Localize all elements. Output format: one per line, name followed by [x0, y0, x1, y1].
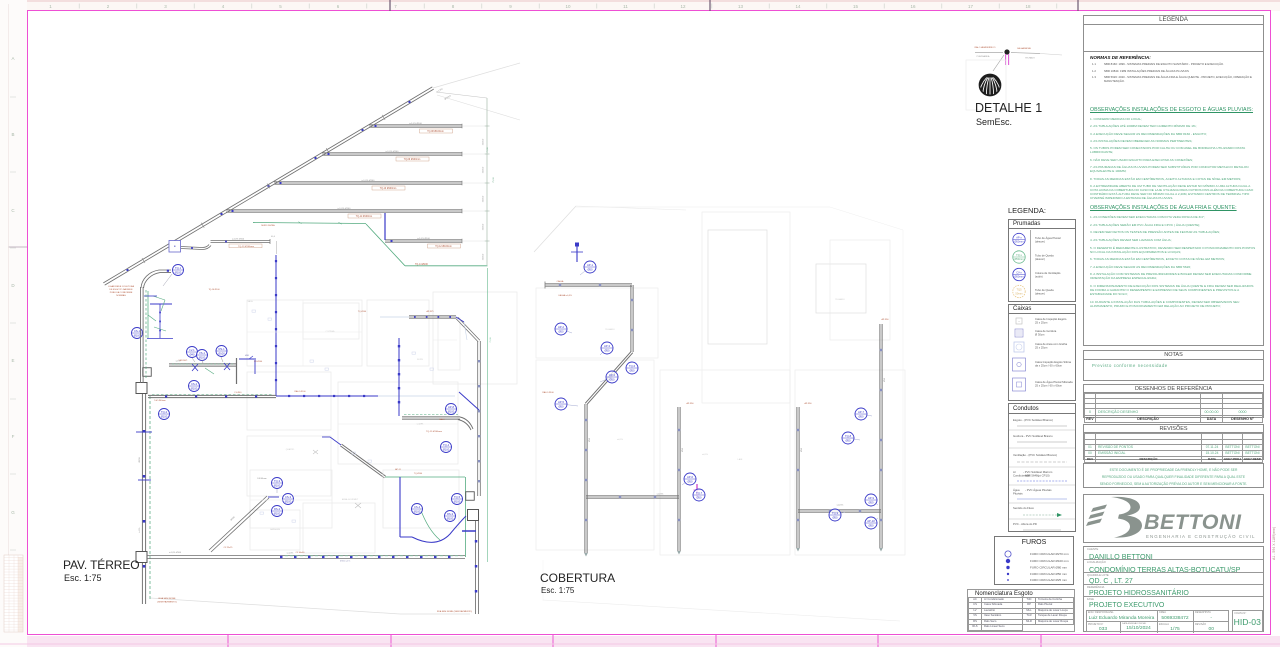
svg-text:AP-5: AP-5 — [558, 400, 564, 404]
svg-text:i=1,0% Ø100: i=1,0% Ø100 — [338, 208, 351, 210]
svg-text:Ventilação - (PVC Soldável Bra: Ventilação - (PVC Soldável Branco) — [1013, 453, 1057, 457]
svg-text:CALHA METAL: CALHA METAL — [1017, 47, 1032, 50]
svg-text:RS-2: RS-2 — [274, 507, 281, 511]
svg-text:Ø100: Ø100 — [199, 355, 206, 359]
svg-text:Ø50: Ø50 — [801, 447, 803, 452]
svg-text:Sentido do Fluxo: Sentido do Fluxo — [1013, 506, 1034, 510]
svg-text:TQ-12 Ø100mm: TQ-12 Ø100mm — [435, 246, 452, 248]
svg-text:Ø100: Ø100 — [448, 409, 455, 413]
svg-text:AP-6: AP-6 — [687, 475, 693, 479]
svg-text:Ø50: Ø50 — [845, 438, 851, 442]
svg-text:RUA SEM NOME (SEM PAVIMENTO): RUA SEM NOME (SEM PAVIMENTO) — [437, 610, 472, 613]
svg-text:i=0,5%: i=0,5% — [657, 494, 664, 496]
svg-text:i=1,0% Ø100: i=1,0% Ø100 — [386, 151, 399, 153]
svg-text:TQ-14 Ø100: TQ-14 Ø100 — [415, 264, 428, 266]
svg-text:CS-4: CS-4 — [414, 505, 421, 509]
svg-text:FURO CIRCULAR Ø270 mm: FURO CIRCULAR Ø270 mm — [1030, 552, 1069, 556]
svg-text:TQ-1: TQ-1 — [175, 266, 182, 270]
svg-text:TQ-10 Ø100mm: TQ-10 Ø100mm — [380, 188, 397, 190]
svg-text:TQ-6: TQ-6 — [629, 364, 636, 368]
svg-text:AP-9: AP-9 — [868, 496, 874, 500]
svg-text:Caixa de Gordura: Caixa de Gordura — [1035, 329, 1057, 333]
svg-text:Ø100: Ø100 — [218, 351, 225, 355]
svg-text:TQ-7: TQ-7 — [696, 491, 703, 495]
svg-text:(descer): (descer) — [1035, 239, 1045, 243]
svg-text:NORMAS: NORMAS — [116, 294, 126, 297]
svg-text:COZINHA: COZINHA — [326, 330, 336, 333]
svg-text:(descer): (descer) — [1035, 291, 1045, 295]
svg-text:TQ-8: TQ-8 — [845, 434, 852, 438]
svg-text:3000,0: 3000,0 — [483, 195, 485, 202]
svg-text:3000,0: 3000,0 — [483, 223, 485, 230]
svg-text:Tubo de Queda: Tubo de Queda — [1035, 288, 1054, 292]
svg-text:CS-3: CS-3 — [285, 495, 292, 499]
svg-text:TQ5: TQ5 — [1016, 288, 1022, 292]
svg-text:i=1,0% Ø100: i=1,0% Ø100 — [169, 552, 182, 554]
svg-text:MURO DIVISA: MURO DIVISA — [261, 224, 275, 227]
svg-text:Ø50mm: Ø50mm — [1014, 274, 1023, 278]
svg-text:TQ Ø100: TQ Ø100 — [358, 311, 367, 313]
svg-text:AREA GOURMET: AREA GOURMET — [342, 498, 359, 501]
svg-text:BETTONI: BETTONI — [1144, 510, 1242, 534]
svg-text:Ø50: Ø50 — [589, 437, 591, 442]
svg-text:TQ-08 Ø100mm: TQ-08 Ø100mm — [427, 131, 444, 133]
svg-text:Ø50: Ø50 — [558, 329, 564, 333]
svg-text:AP Ø50: AP Ø50 — [687, 402, 695, 405]
svg-text:DN 40mm: DN 40mm — [257, 478, 267, 480]
svg-text:AP Ø75: AP Ø75 — [427, 310, 435, 313]
svg-text:CV-x: CV-x — [1016, 271, 1022, 275]
svg-text:(SEM PAVIMENTO): (SEM PAVIMENTO) — [157, 601, 177, 604]
svg-text:75,00: 75,00 — [487, 147, 489, 153]
svg-text:75,00: 75,00 — [490, 337, 492, 343]
svg-text:RALO HEMISFÉRICO: RALO HEMISFÉRICO — [975, 46, 996, 49]
svg-text:AP-11: AP-11 — [395, 468, 401, 471]
svg-text:Tubo de Água Pluvial: Tubo de Água Pluvial — [1035, 236, 1061, 240]
svg-text:ENGENHARIA E CONSTRUÇÃO CIV: ENGENHARIA E CONSTRUÇÃO CIVIL — [1146, 534, 1255, 539]
svg-text:Ø50: Ø50 — [609, 377, 615, 381]
svg-text:Ø100: Ø100 — [134, 333, 141, 337]
svg-text:LV-1: LV-1 — [189, 348, 195, 352]
svg-text:Ø50: Ø50 — [629, 368, 635, 372]
svg-text:AP-8: AP-8 — [448, 405, 454, 409]
svg-text:Ø40: Ø40 — [189, 352, 195, 356]
svg-text:Ø100: Ø100 — [175, 270, 182, 274]
svg-text:Caixa Inspeção Esgoto Sifona: Caixa Inspeção Esgoto Sifona — [1035, 360, 1072, 364]
svg-text:75,00: 75,00 — [493, 176, 495, 182]
svg-text:Ø100: Ø100 — [447, 516, 454, 520]
svg-text:Esgoto - (PVC Soldável Branco): Esgoto - (PVC Soldável Branco) — [1013, 418, 1053, 422]
svg-text:Ø40: Ø40 — [245, 355, 250, 357]
svg-text:i=1,0%: i=1,0% — [287, 553, 294, 555]
svg-text:50mm: 50mm — [1015, 291, 1022, 295]
svg-text:AP Ø50: AP Ø50 — [805, 402, 813, 405]
svg-text:TQ-16 Ø100: TQ-16 Ø100 — [208, 289, 220, 291]
svg-text:Ø50: Ø50 — [696, 495, 702, 499]
svg-text:Ø100: Ø100 — [230, 516, 236, 521]
svg-text:RUA SEM NOME: RUA SEM NOME — [158, 597, 176, 600]
svg-text:DE ESGOTO NA REDE: DE ESGOTO NA REDE — [109, 288, 133, 291]
svg-text:Ø50: Ø50 — [587, 267, 593, 271]
svg-text:LV Ø40: LV Ø40 — [235, 392, 243, 394]
svg-text:QUARTO: QUARTO — [286, 448, 295, 451]
svg-text:TQ Ø100: TQ Ø100 — [414, 473, 423, 475]
svg-text:Pluviais: Pluviais — [1013, 491, 1023, 495]
svg-text:TQ-3: TQ-3 — [274, 479, 281, 483]
svg-text:Ø100: Ø100 — [274, 483, 281, 487]
svg-text:FURO CIRCULAR Ø80 mm: FURO CIRCULAR Ø80 mm — [1030, 566, 1068, 570]
svg-text:TQ-09 Ø100mm: TQ-09 Ø100mm — [404, 159, 421, 161]
svg-text:Ø 30cm: Ø 30cm — [1035, 332, 1045, 336]
svg-text:Ø150: Ø150 — [139, 457, 141, 463]
svg-text:AP-7: AP-7 — [858, 410, 864, 414]
svg-text:Ø150,0: Ø150,0 — [444, 95, 452, 101]
svg-text:i=1,0% Ø100: i=1,0% Ø100 — [409, 123, 422, 125]
svg-text:i=0,5%: i=0,5% — [837, 505, 844, 507]
svg-text:FURO CIRCULAR Ø100 mm: FURO CIRCULAR Ø100 mm — [1030, 559, 1069, 563]
svg-text:Ø50: Ø50 — [604, 348, 610, 352]
svg-text:PUBLICA CONFORME: PUBLICA CONFORME — [110, 291, 133, 294]
svg-text:AP-4: AP-4 — [609, 373, 615, 377]
svg-text:Ø50: Ø50 — [868, 500, 874, 504]
svg-text:Ø50mm: Ø50mm — [1014, 239, 1023, 243]
svg-text:TQ-11 Ø100mm: TQ-11 Ø100mm — [356, 216, 373, 218]
svg-text:TQ-9: TQ-9 — [832, 511, 839, 515]
svg-text:CALHA i=0,5%: CALHA i=0,5% — [558, 294, 572, 297]
svg-text:Ø50: Ø50 — [832, 515, 838, 519]
svg-text:Ø50mm: Ø50mm — [1014, 257, 1023, 261]
svg-text:i=1,0% Ø100: i=1,0% Ø100 — [417, 238, 430, 240]
svg-text:FURO CIRCULAR Ø50 mm: FURO CIRCULAR Ø50 mm — [1030, 572, 1068, 576]
svg-text:AP-x: AP-x — [1016, 236, 1022, 240]
svg-text:Caixa de Água Pluvial Sifonada: Caixa de Água Pluvial Sifonada — [1035, 380, 1073, 384]
svg-text:- NBR 5648(pt CP10): - NBR 5648(pt CP10) — [1023, 473, 1050, 477]
svg-text:25 x 25cm / 60 x 60cm: 25 x 25cm / 60 x 60cm — [1035, 383, 1063, 387]
svg-text:Ø100: Ø100 — [414, 509, 421, 513]
svg-text:RALO Ø100: RALO Ø100 — [542, 391, 554, 394]
svg-text:Ø100: Ø100 — [274, 511, 281, 515]
svg-text:Ø50: Ø50 — [884, 377, 886, 382]
svg-text:RALO: RALO — [439, 418, 445, 421]
svg-text:Ø100: Ø100 — [443, 447, 450, 451]
svg-text:SALA: SALA — [247, 300, 253, 303]
svg-text:PLATIBANDA: PLATIBANDA — [977, 55, 990, 58]
svg-text:40,0: 40,0 — [271, 236, 276, 238]
svg-text:RS-1: RS-1 — [218, 347, 225, 351]
svg-text:25 x 25cm: 25 x 25cm — [1035, 320, 1048, 324]
svg-text:AP-2: AP-2 — [558, 325, 564, 329]
svg-text:RALO Ø100: RALO Ø100 — [295, 390, 307, 393]
svg-text:i=1%: i=1% — [139, 528, 141, 533]
svg-text:Ø100: Ø100 — [191, 386, 198, 390]
svg-text:Ø50: Ø50 — [858, 414, 864, 418]
svg-text:TELHADO: TELHADO — [835, 298, 845, 301]
svg-text:TQ-13 Ø100mm: TQ-13 Ø100mm — [238, 246, 254, 248]
svg-text:Tubo de Queda: Tubo de Queda — [1035, 254, 1054, 258]
svg-text:VS-1: VS-1 — [199, 351, 205, 355]
svg-text:AP-3: AP-3 — [604, 344, 610, 348]
svg-text:Ø100: Ø100 — [161, 414, 168, 418]
svg-text:TdC Ø40mm: TdC Ø40mm — [154, 400, 166, 402]
svg-text:TELHADO: TELHADO — [605, 328, 615, 331]
svg-text:SUITE: SUITE — [417, 359, 424, 361]
svg-text:TQ-x: TQ-x — [1016, 253, 1022, 257]
svg-text:CS-2: CS-2 — [191, 382, 198, 386]
svg-text:CX 25x25: CX 25x25 — [224, 547, 234, 549]
svg-text:3000,0: 3000,0 — [483, 138, 485, 145]
svg-text:TELHADO: TELHADO — [1025, 57, 1035, 60]
svg-text:LIGAR REDE COLETORA: LIGAR REDE COLETORA — [108, 285, 134, 288]
svg-text:AP-10: AP-10 — [867, 519, 875, 523]
svg-text:Caixa de Areia com Grelha: Caixa de Areia com Grelha — [1035, 342, 1068, 346]
svg-text:TQ-4: TQ-4 — [443, 443, 450, 447]
svg-text:(descer): (descer) — [1035, 257, 1045, 261]
svg-text:TQ-2: TQ-2 — [161, 410, 168, 414]
svg-text:TQ-5: TQ-5 — [454, 495, 461, 499]
svg-text:Ø50: Ø50 — [682, 447, 684, 452]
svg-text:3000,0: 3000,0 — [483, 166, 485, 173]
svg-text:CALHA: CALHA — [557, 280, 564, 283]
svg-text:TQ-15 Ø100mm: TQ-15 Ø100mm — [426, 431, 442, 433]
svg-text:(subir): (subir) — [1035, 274, 1043, 278]
svg-text:25 x 25cm: 25 x 25cm — [1035, 345, 1048, 349]
svg-text:Gordura - PVC Soldável Branco: Gordura - PVC Soldável Branco — [1013, 434, 1053, 438]
svg-text:LAJE: LAJE — [738, 458, 743, 461]
svg-text:Ø50: Ø50 — [558, 404, 564, 408]
svg-text:3000,0: 3000,0 — [483, 253, 485, 260]
svg-text:CS Ø100: CS Ø100 — [254, 361, 263, 363]
svg-text:AP-1: AP-1 — [587, 263, 593, 267]
svg-text:FURO CIRCULAR Ø25 mm: FURO CIRCULAR Ø25 mm — [1030, 578, 1068, 582]
svg-text:i=1,0% Ø100: i=1,0% Ø100 — [232, 239, 245, 241]
svg-text:i=1%: i=1% — [176, 361, 181, 363]
svg-text:Ø150 i=1%: Ø150 i=1% — [340, 561, 350, 563]
svg-text:Ø50: Ø50 — [868, 523, 874, 527]
svg-text:Ø50: Ø50 — [687, 479, 693, 483]
svg-text:- PVC Águas Pluviais: - PVC Águas Pluviais — [1025, 488, 1052, 492]
svg-text:PVC - Altura do PD: PVC - Altura do PD — [1013, 522, 1037, 526]
svg-text:Ø100: Ø100 — [454, 499, 461, 503]
svg-text:CS-1: CS-1 — [134, 329, 141, 333]
svg-text:Coluna de Ventilação: Coluna de Ventilação — [1035, 271, 1061, 275]
svg-text:GARAGEM: GARAGEM — [270, 528, 281, 531]
svg-text:CX 60x60: CX 60x60 — [296, 552, 306, 554]
svg-text:AP Ø50: AP Ø50 — [882, 318, 890, 321]
svg-text:da x 25cm / 60 x 60cm: da x 25cm / 60 x 60cm — [1035, 363, 1063, 367]
svg-text:i=1,0% Ø100: i=1,0% Ø100 — [362, 180, 375, 182]
svg-text:i=0,5%: i=0,5% — [617, 439, 623, 441]
svg-text:i=0,5%: i=0,5% — [702, 454, 708, 456]
svg-text:Caixa de Inspeção Esgoto: Caixa de Inspeção Esgoto — [1035, 317, 1067, 321]
svg-text:RS-3: RS-3 — [447, 512, 454, 516]
svg-text:x: x — [1018, 321, 1020, 323]
